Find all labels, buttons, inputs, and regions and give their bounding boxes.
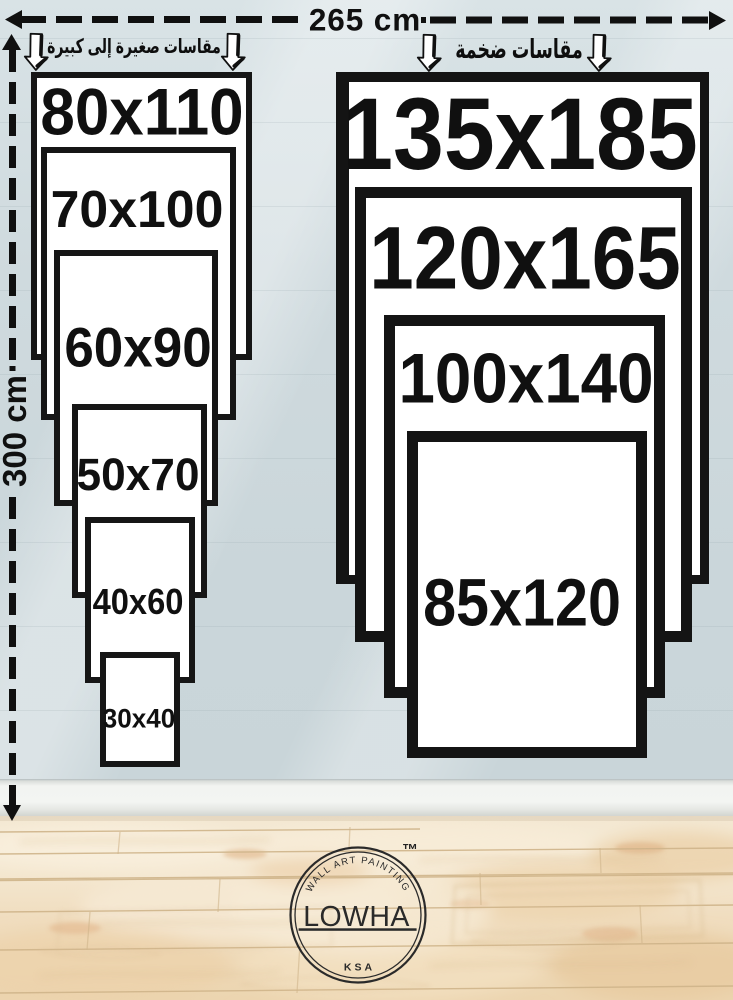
svg-text:300 cm: 300 cm <box>0 375 33 487</box>
svg-text:WALL ART PAINTING: WALL ART PAINTING <box>304 855 412 894</box>
svg-text:KSA: KSA <box>344 962 375 974</box>
svg-text:LOWHA: LOWHA <box>303 901 410 933</box>
